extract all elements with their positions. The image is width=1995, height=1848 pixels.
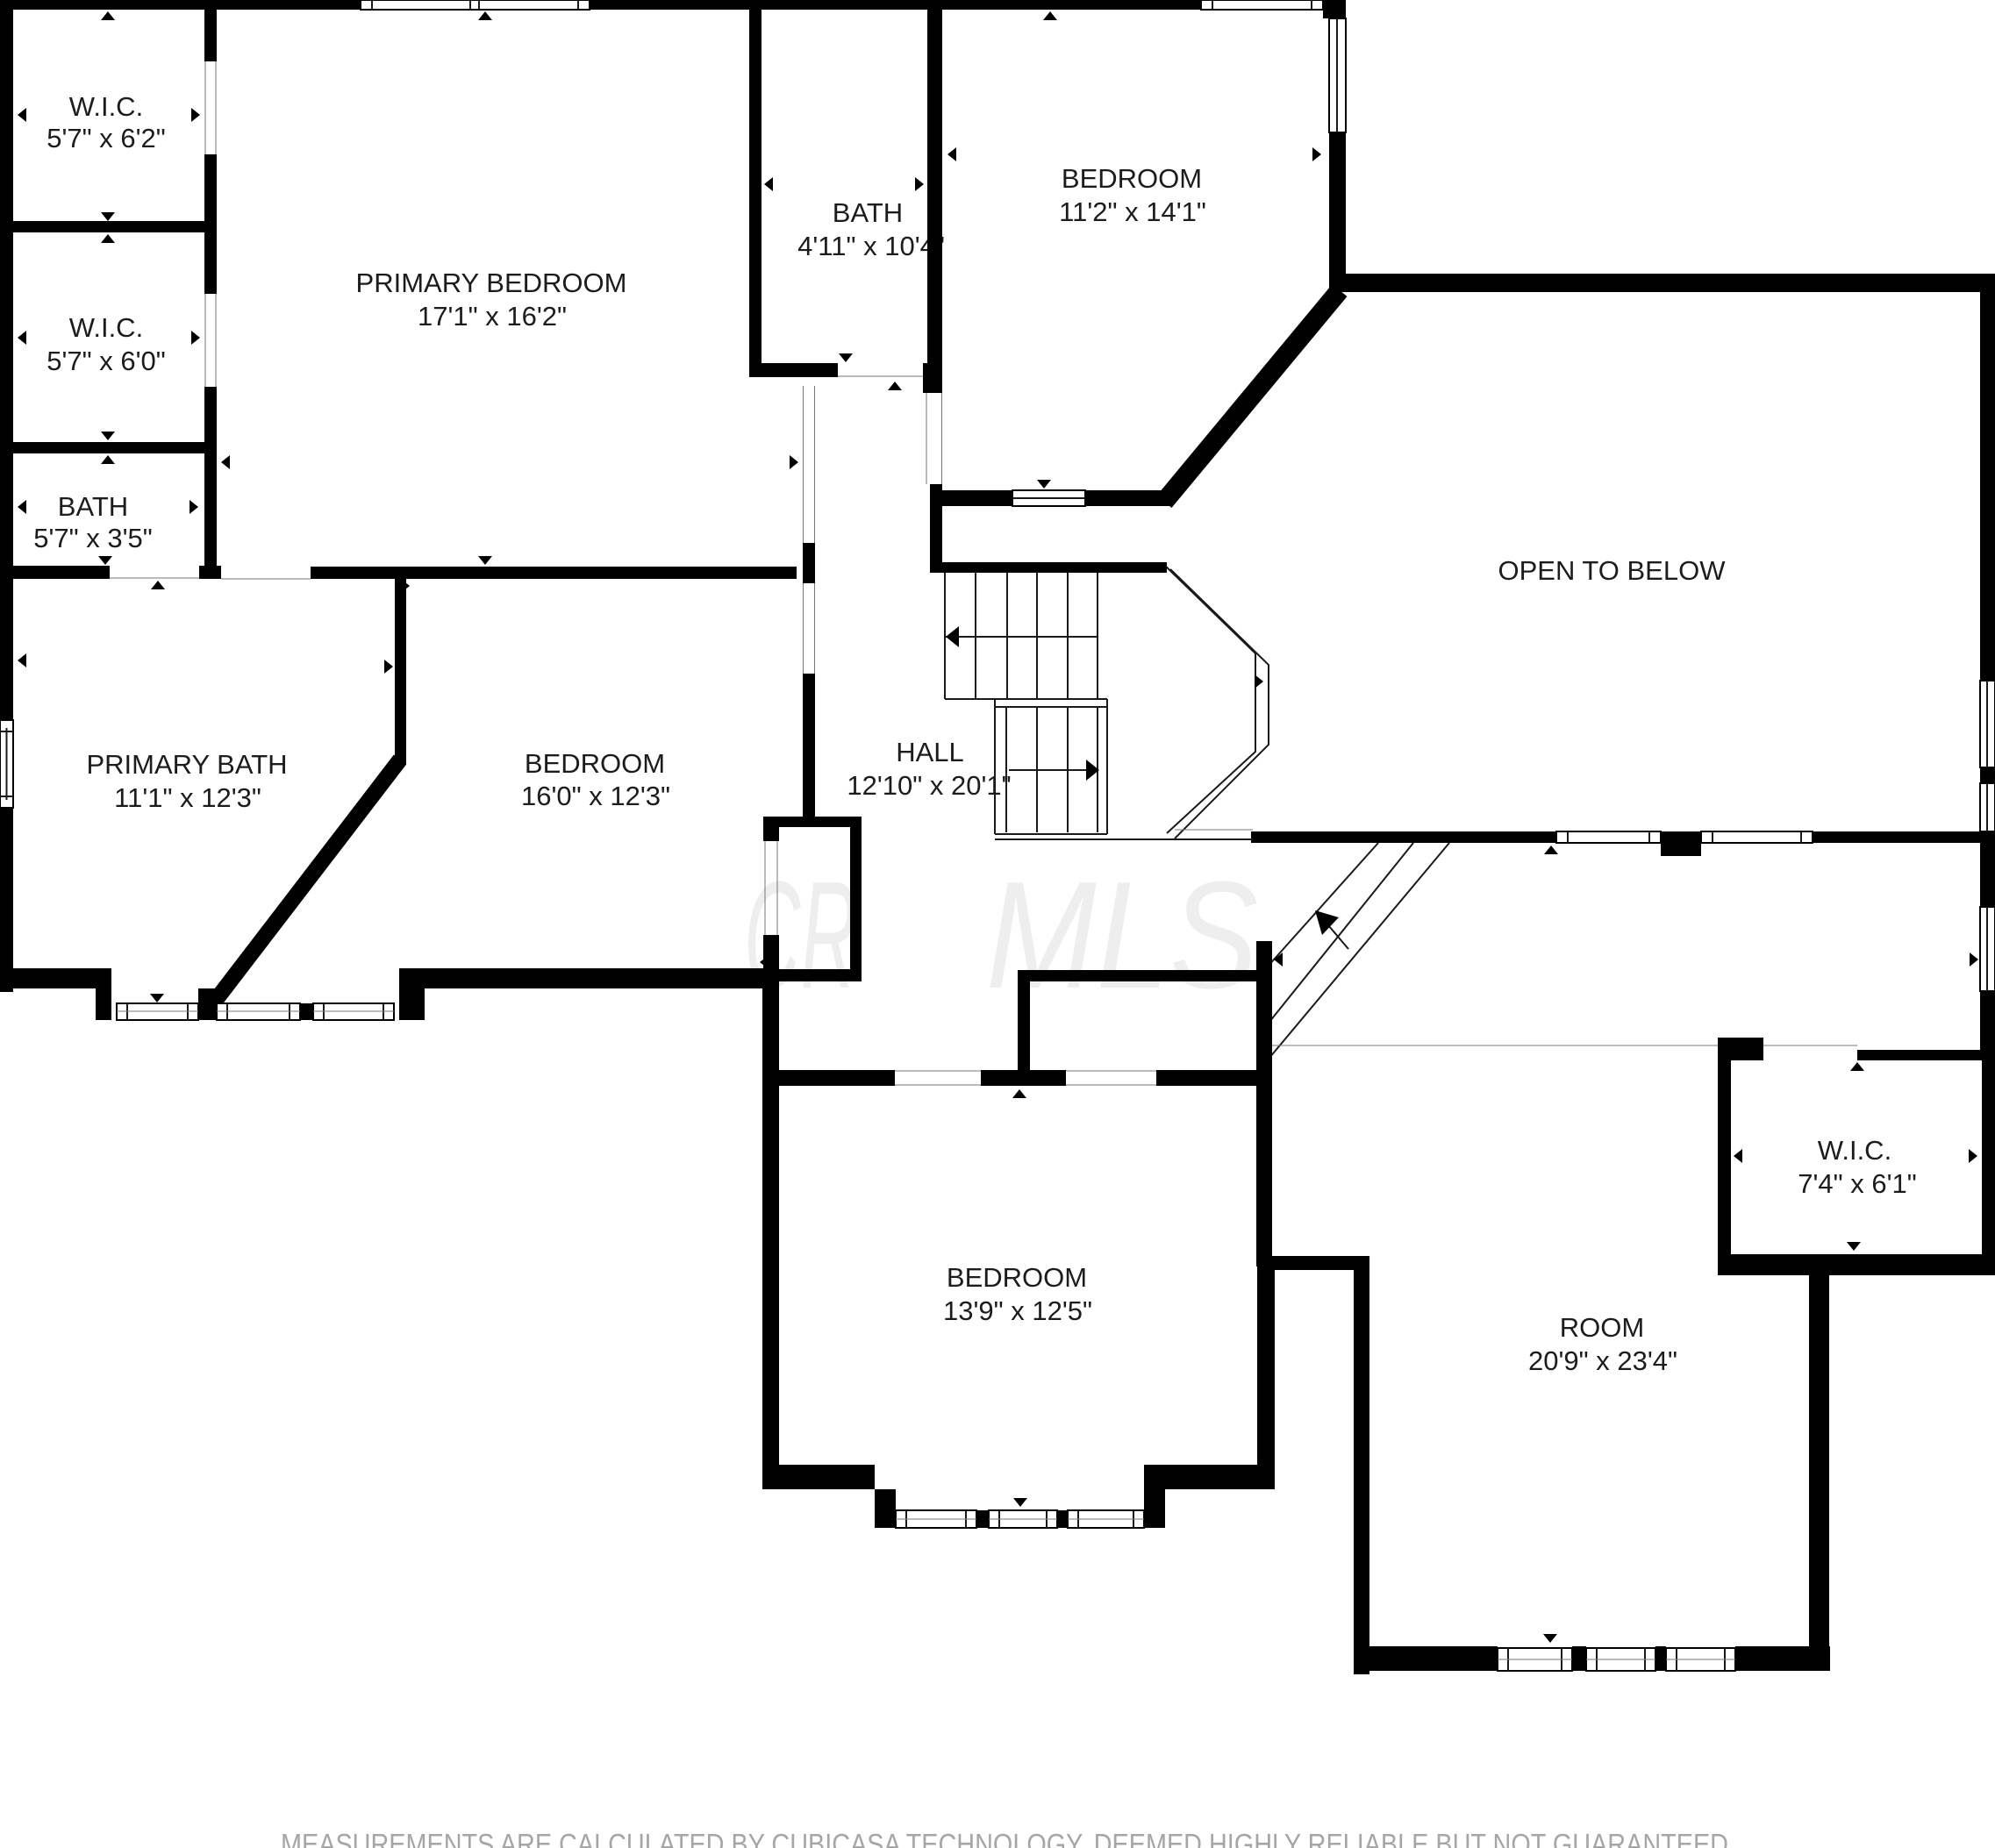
svg-text:BEDROOM: BEDROOM bbox=[1062, 163, 1202, 194]
svg-text:17'1" x 16'2": 17'1" x 16'2" bbox=[418, 301, 567, 332]
svg-text:BATH: BATH bbox=[58, 491, 128, 522]
svg-text:11'1" x 12'3": 11'1" x 12'3" bbox=[114, 782, 261, 813]
svg-text:HALL: HALL bbox=[896, 737, 964, 767]
svg-text:BEDROOM: BEDROOM bbox=[947, 1262, 1087, 1293]
svg-text:13'9" x 12'5": 13'9" x 12'5" bbox=[943, 1295, 1092, 1326]
svg-text:4'11" x 10'4": 4'11" x 10'4" bbox=[797, 231, 945, 261]
svg-text:ROOM: ROOM bbox=[1560, 1312, 1644, 1343]
svg-text:MEASUREMENTS ARE CALCULATED BY: MEASUREMENTS ARE CALCULATED BY CUBICASA … bbox=[281, 1828, 1728, 1848]
svg-text:PRIMARY BEDROOM: PRIMARY BEDROOM bbox=[356, 268, 627, 298]
svg-text:16'0" x 12'3": 16'0" x 12'3" bbox=[521, 781, 670, 811]
svg-text:CR: CR bbox=[744, 849, 857, 1020]
svg-text:W.I.C.: W.I.C. bbox=[69, 91, 143, 122]
svg-text:11'2" x 14'1": 11'2" x 14'1" bbox=[1059, 196, 1206, 227]
svg-text:12'10" x 20'1": 12'10" x 20'1" bbox=[847, 770, 1011, 801]
svg-text:W.I.C.: W.I.C. bbox=[1818, 1135, 1891, 1166]
svg-text:7'4" x 6'1": 7'4" x 6'1" bbox=[1798, 1168, 1917, 1199]
svg-text:OPEN TO BELOW: OPEN TO BELOW bbox=[1498, 555, 1727, 586]
svg-text:BEDROOM: BEDROOM bbox=[525, 748, 665, 779]
svg-text:PRIMARY BATH: PRIMARY BATH bbox=[86, 749, 287, 780]
svg-text:5'7" x 6'2": 5'7" x 6'2" bbox=[46, 123, 166, 153]
svg-text:5'7" x 3'5": 5'7" x 3'5" bbox=[33, 523, 153, 553]
svg-text:20'9" x 23'4": 20'9" x 23'4" bbox=[1528, 1345, 1677, 1376]
svg-text:W.I.C.: W.I.C. bbox=[69, 312, 143, 343]
svg-text:BATH: BATH bbox=[833, 197, 903, 228]
svg-text:5'7" x 6'0": 5'7" x 6'0" bbox=[46, 346, 166, 376]
